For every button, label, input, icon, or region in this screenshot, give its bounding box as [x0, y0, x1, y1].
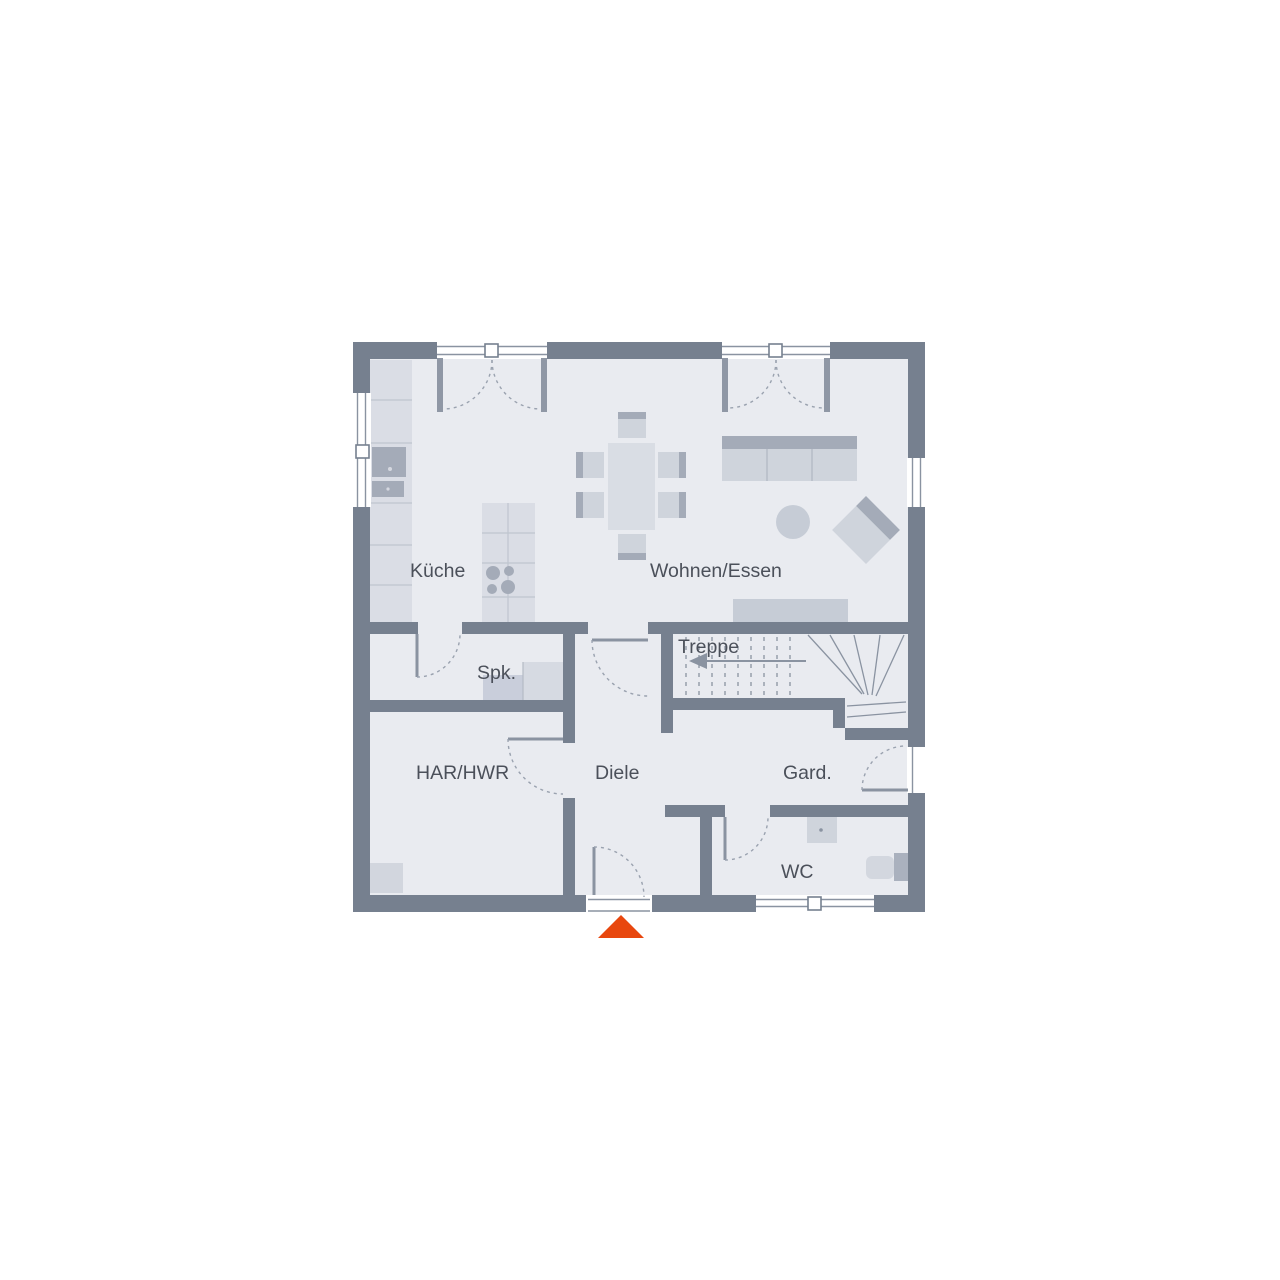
- chair-seat: [583, 452, 604, 478]
- sofa: [722, 436, 857, 481]
- coffee-table: [776, 505, 810, 539]
- door-jamb: [824, 358, 830, 412]
- chair-seat: [618, 419, 646, 438]
- wall-stairs-stub: [661, 710, 673, 733]
- wall-stairs-east: [833, 710, 845, 728]
- window-handle-symbol: [808, 897, 821, 910]
- wall-wc-north-left: [665, 805, 725, 817]
- wall-kitchen-pantry-left: [370, 622, 418, 634]
- sofa-seats: [722, 449, 857, 481]
- shelf-right: [523, 662, 563, 700]
- window-east: [907, 458, 926, 507]
- basin-drain: [819, 828, 823, 832]
- room-label-living-dining: Wohnen/Essen: [650, 560, 782, 582]
- wall-wc-north-right: [770, 805, 908, 817]
- chair-seat: [583, 492, 604, 518]
- wall-stairs-west: [661, 634, 673, 698]
- window-opening: [907, 458, 926, 507]
- chair-seat: [658, 452, 679, 478]
- room-label-utility: HAR/HWR: [416, 762, 509, 784]
- window-handle-symbol: [356, 445, 369, 458]
- door-opening: [586, 895, 652, 916]
- floor-plan-page: Küche Wohnen/Essen Spk. Treppe HAR/HWR D…: [0, 0, 1280, 1280]
- door-jamb: [437, 358, 443, 412]
- door-jamb: [722, 358, 728, 412]
- wall-kitchen-pantry-right: [462, 622, 588, 634]
- chair-back: [576, 452, 583, 478]
- door-pivot-symbol: [769, 344, 782, 357]
- wall-wc-west: [700, 817, 712, 895]
- chair-seat: [618, 534, 646, 553]
- window-wc: [756, 895, 874, 912]
- kitchen-sink: [372, 447, 406, 477]
- sideboard: [733, 599, 848, 622]
- appliance-knob: [386, 487, 389, 490]
- wall-living-stairs: [648, 622, 908, 634]
- wall-pantry-utility: [370, 700, 575, 712]
- toilet-tank: [894, 853, 908, 881]
- room-label-pantry: Spk.: [477, 662, 516, 684]
- wall-pantry-hall: [563, 634, 575, 743]
- room-label-kitchen: Küche: [410, 560, 465, 582]
- wall-landing-south: [845, 728, 908, 740]
- wall-stairs-south: [661, 698, 845, 710]
- door-opening: [907, 747, 926, 793]
- entrance-marker-icon: [598, 915, 644, 938]
- chair-seat: [658, 492, 679, 518]
- chair-back: [618, 412, 646, 419]
- door-pivot-symbol: [485, 344, 498, 357]
- wall-east: [908, 342, 925, 912]
- kitchen-counter: [370, 360, 412, 622]
- door-jamb: [541, 358, 547, 412]
- window-west: [352, 393, 371, 507]
- wall-utility-hall: [563, 798, 575, 895]
- chair-back: [679, 452, 686, 478]
- chair-back: [618, 553, 646, 560]
- room-label-hallway: Diele: [595, 762, 639, 784]
- dining-table: [608, 443, 655, 530]
- utility-equipment: [370, 863, 403, 893]
- sink-drain: [388, 467, 392, 471]
- chair-back: [576, 492, 583, 518]
- kitchen-island: [482, 503, 535, 622]
- room-label-stairs: Treppe: [678, 636, 739, 658]
- floor-plan: Küche Wohnen/Essen Spk. Treppe HAR/HWR D…: [0, 0, 1280, 1280]
- sofa-back: [722, 436, 857, 449]
- chair-back: [679, 492, 686, 518]
- room-label-wc: WC: [781, 861, 814, 883]
- toilet-bowl: [866, 856, 894, 879]
- room-label-wardrobe: Gard.: [783, 762, 832, 784]
